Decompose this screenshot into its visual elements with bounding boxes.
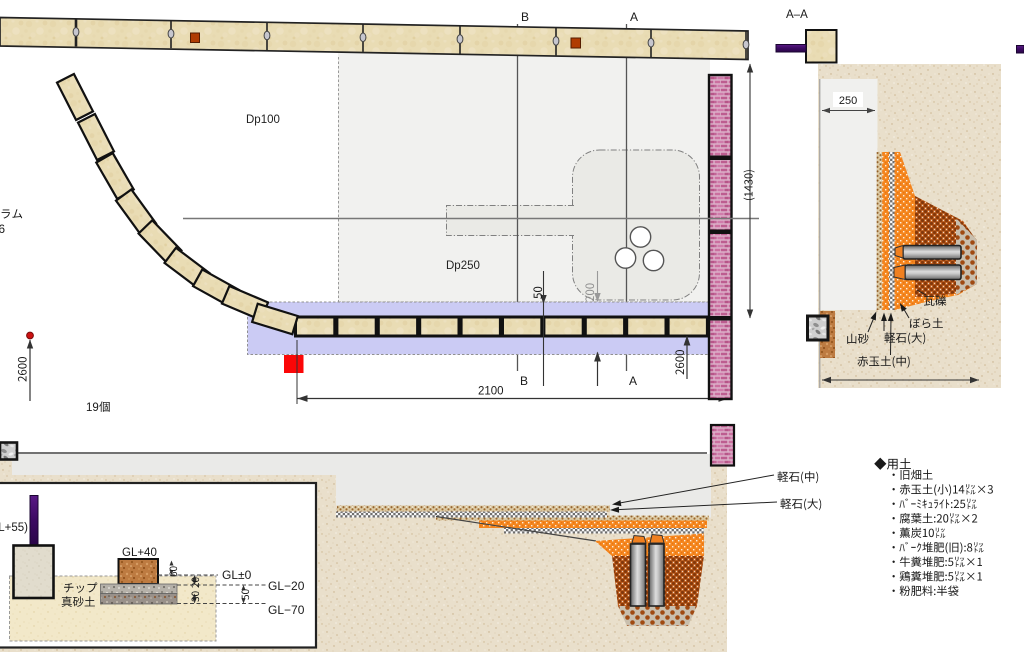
- svg-text:GL−70: GL−70: [268, 603, 305, 617]
- svg-text:B: B: [521, 10, 529, 24]
- svg-text:16: 16: [0, 222, 5, 236]
- svg-text:(GL+55): (GL+55): [0, 522, 28, 534]
- svg-text:Dp250: Dp250: [446, 260, 480, 272]
- svg-text:GL+40: GL+40: [122, 547, 157, 559]
- svg-text:GL±0: GL±0: [222, 568, 252, 582]
- svg-text:GL−20: GL−20: [268, 579, 305, 593]
- svg-text:A: A: [630, 10, 638, 24]
- svg-text:A–A: A–A: [786, 9, 808, 21]
- svg-text:19: 19: [86, 402, 99, 414]
- svg-text:Dp100: Dp100: [246, 114, 280, 126]
- svg-text:250: 250: [839, 95, 857, 107]
- svg-text:B: B: [520, 374, 528, 388]
- svg-text:A: A: [629, 374, 637, 388]
- svg-text:2100: 2100: [478, 386, 504, 398]
